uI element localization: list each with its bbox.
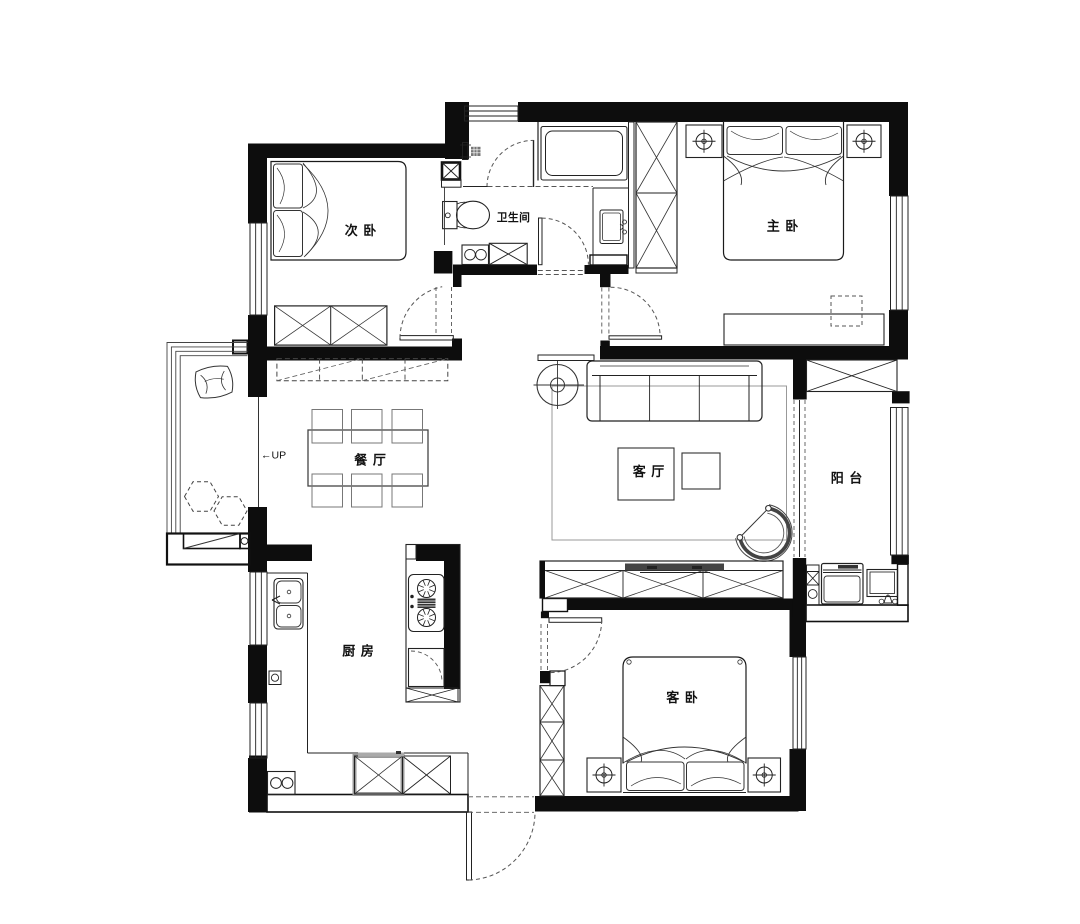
svg-text:←UP: ←UP: [261, 450, 286, 462]
svg-text:厨 房: 厨 房: [342, 643, 375, 658]
svg-text:主 卧: 主 卧: [767, 218, 800, 233]
svg-text:次 卧: 次 卧: [345, 223, 378, 238]
svg-text:卫生间: 卫生间: [497, 210, 531, 224]
svg-text:餐 厅: 餐 厅: [353, 452, 387, 467]
svg-text:阳 台: 阳 台: [831, 470, 864, 485]
svg-text:客 卧: 客 卧: [666, 690, 699, 705]
svg-text:客 厅: 客 厅: [633, 464, 666, 479]
